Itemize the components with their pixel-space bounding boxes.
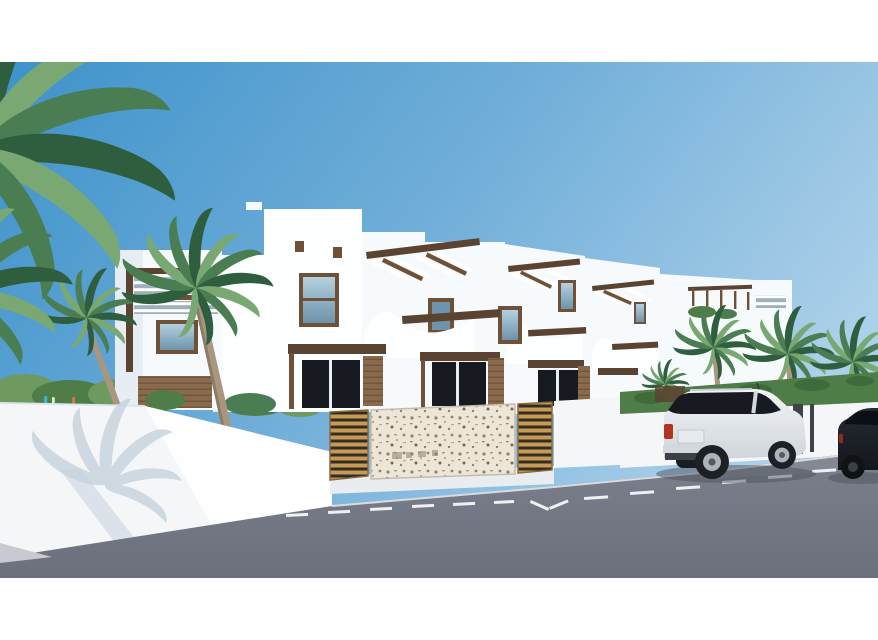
wood-cladding — [363, 356, 383, 406]
dark-car-taillight — [839, 434, 843, 443]
entry-canopy — [288, 344, 386, 354]
suv-windows — [668, 392, 781, 414]
architectural-render — [0, 0, 878, 640]
suv-roof-rail — [690, 389, 752, 390]
facade-vent — [295, 241, 304, 252]
wooden-slat-fence-right — [518, 402, 552, 473]
roof-detail — [246, 202, 262, 210]
entry-canopy — [528, 360, 584, 368]
wood-cladding — [488, 358, 504, 406]
suv-shadow — [656, 465, 816, 483]
entry-canopy — [598, 368, 638, 375]
shrub — [145, 390, 185, 410]
suv-taillight — [664, 424, 673, 439]
suv-plate — [678, 430, 704, 443]
townhouse-unit-2 — [362, 232, 522, 412]
railing-slats — [756, 295, 786, 308]
shrub — [224, 393, 276, 415]
bottom-margin — [0, 578, 878, 640]
top-margin — [0, 0, 878, 62]
facade-vent — [333, 247, 342, 258]
gabion-stone-wall — [371, 404, 515, 479]
gate-post — [810, 404, 814, 452]
render-scene — [0, 0, 878, 578]
wooden-slat-fence-left — [330, 410, 368, 480]
